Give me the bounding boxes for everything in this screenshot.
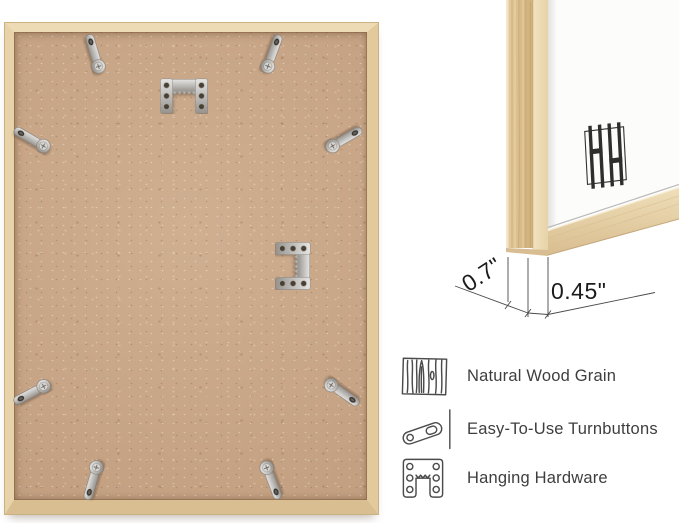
mat-shadow xyxy=(548,0,557,229)
frame-edge-highlight xyxy=(506,0,509,248)
sawtooth-hanger-middle xyxy=(275,242,311,290)
frame-corner-detail: 0.7" 0.45" xyxy=(430,0,679,345)
wood-grain-icon xyxy=(400,355,454,398)
frame-back-photo xyxy=(5,23,378,514)
product-infographic: 0.7" 0.45" Natural Wood Grain xyxy=(0,0,679,523)
sawtooth-hanger-top xyxy=(160,78,208,114)
hanging-hardware-icon xyxy=(400,456,454,500)
depth-dimension-label: 0.7" xyxy=(457,252,507,297)
frame-front-edge xyxy=(533,0,548,252)
feature-label-turnbuttons: Easy-To-Use Turnbuttons xyxy=(467,420,658,439)
feature-label-wood-grain: Natural Wood Grain xyxy=(467,367,616,386)
feature-label-hanging-hardware: Hanging Hardware xyxy=(467,469,608,488)
feature-row-turnbuttons: Easy-To-Use Turnbuttons xyxy=(400,407,658,451)
face-dimension-label: 0.45" xyxy=(551,278,606,304)
feature-row-hanging-hardware: Hanging Hardware xyxy=(400,456,608,500)
turnbutton-icon xyxy=(400,407,454,451)
feature-row-wood-grain: Natural Wood Grain xyxy=(400,353,616,399)
